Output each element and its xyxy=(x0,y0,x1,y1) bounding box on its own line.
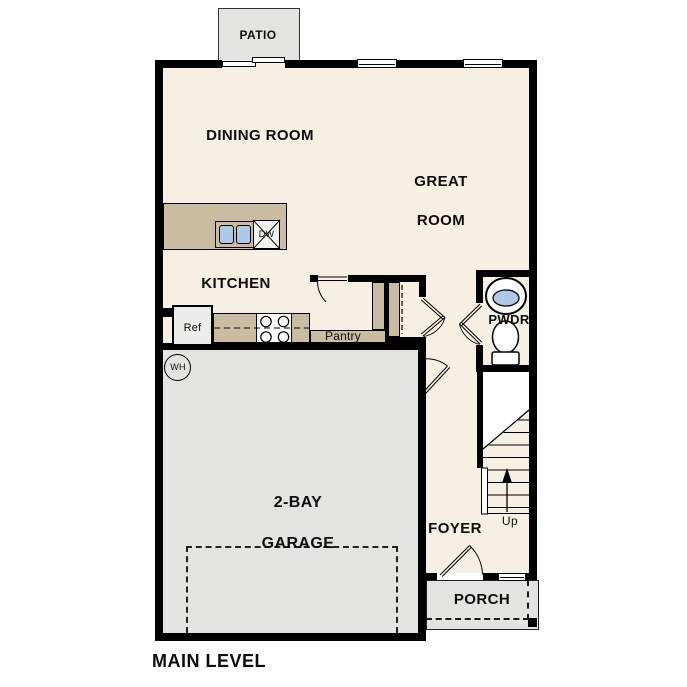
patio-label: PATIO xyxy=(218,28,298,44)
garage-door-outline xyxy=(186,546,398,633)
powder-bottom-wall xyxy=(476,365,529,372)
kitchen-label: KITCHEN xyxy=(176,274,296,294)
left-wall xyxy=(155,60,163,641)
great-room-line1: GREAT xyxy=(414,173,467,190)
pantry-label: Pantry xyxy=(308,329,378,345)
porch-dashed-bottom xyxy=(426,618,529,620)
patio-slider-panel-right xyxy=(252,57,285,63)
garage-label: 2-BAY GARAGE xyxy=(228,472,368,555)
garage-line2: GARAGE xyxy=(262,535,335,552)
pantry-top-stub xyxy=(310,275,318,282)
stairs-left-wall xyxy=(477,372,483,468)
floor-plan: PATIO DW Ref WH xyxy=(0,0,687,687)
kitchen-left-stub xyxy=(155,308,173,317)
great-room-line2: ROOM xyxy=(417,212,465,229)
garage-right-wall xyxy=(418,343,426,641)
porch-post xyxy=(528,618,537,627)
garage-line1: 2-BAY xyxy=(274,494,323,511)
foyer-front-wall-c xyxy=(526,573,537,580)
up-label: Up xyxy=(495,514,525,530)
pantry-shelf xyxy=(372,282,385,330)
sink-basin-right xyxy=(236,225,251,244)
water-heater-label: WH xyxy=(164,362,192,374)
patio-slider-panel-left xyxy=(222,61,256,67)
dishwasher-label: DW xyxy=(254,229,279,241)
powder-left-wall-upper xyxy=(476,270,483,303)
great-room-label: GREAT ROOM xyxy=(391,152,491,230)
garage-bottom-wall xyxy=(155,633,426,641)
powder-room-label: PWDR xyxy=(479,312,539,329)
foyer-window-icon xyxy=(498,573,526,581)
kitchen-sink xyxy=(215,221,254,248)
porch-dashed-right xyxy=(527,580,529,620)
foyer-label: FOYER xyxy=(415,519,495,539)
dining-room-label: DINING ROOM xyxy=(180,126,340,146)
porch-label: PORCH xyxy=(442,590,522,610)
coat-closet-shelf xyxy=(388,282,400,337)
main-level-label: MAIN LEVEL xyxy=(152,650,352,673)
sink-basin-left xyxy=(219,225,234,244)
greatroom-window-icon xyxy=(463,59,503,68)
stove xyxy=(256,313,292,343)
foyer-front-wall-a xyxy=(418,573,437,580)
refrigerator-label: Ref xyxy=(172,321,213,335)
dining-window-icon xyxy=(357,59,397,68)
foyer-front-wall-b xyxy=(483,573,498,580)
hall-wall-upper xyxy=(419,275,426,297)
powder-top-wall xyxy=(483,270,529,277)
